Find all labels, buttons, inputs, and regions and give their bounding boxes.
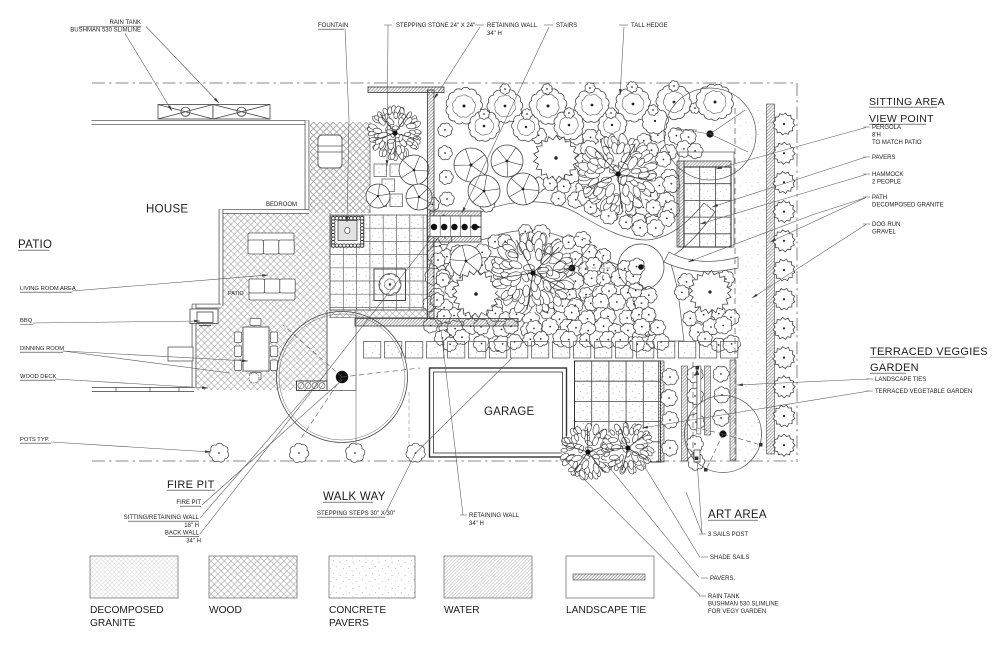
svg-text:RETAINING WALL: RETAINING WALL: [469, 513, 520, 519]
svg-text:SHADE SAILS: SHADE SAILS: [710, 555, 749, 561]
svg-text:TO MATCH PATIO: TO MATCH PATIO: [872, 140, 922, 146]
svg-text:GARAGE: GARAGE: [484, 406, 535, 418]
svg-text:FOR VEGY GARDEN: FOR VEGY GARDEN: [708, 609, 766, 615]
svg-text:WOOD: WOOD: [209, 605, 242, 616]
svg-text:34" H: 34" H: [487, 31, 502, 37]
svg-text:TERRACED VEGETABLE GARDEN: TERRACED VEGETABLE GARDEN: [875, 389, 972, 395]
svg-text:PATIO: PATIO: [18, 239, 52, 251]
svg-text:WATER: WATER: [444, 605, 480, 616]
svg-text:PERGOLA: PERGOLA: [872, 125, 901, 131]
svg-text:GRANITE: GRANITE: [90, 618, 135, 629]
svg-text:BACK WALL: BACK WALL: [165, 531, 200, 537]
svg-text:CONCRETE: CONCRETE: [329, 605, 386, 616]
svg-text:BEDROOM: BEDROOM: [266, 202, 297, 208]
svg-text:TALL HEDGE: TALL HEDGE: [631, 23, 668, 29]
svg-text:HOUSE: HOUSE: [146, 204, 188, 216]
svg-text:FIRE PIT: FIRE PIT: [167, 479, 215, 491]
svg-text:PAVERS: PAVERS: [329, 618, 369, 629]
svg-text:HAMMOCK: HAMMOCK: [872, 172, 903, 178]
svg-text:BBQ: BBQ: [20, 318, 33, 324]
svg-text:VIEW POINT: VIEW POINT: [869, 113, 934, 125]
svg-text:PATIO: PATIO: [228, 291, 244, 297]
svg-text:RAIN TANK: RAIN TANK: [708, 594, 739, 600]
svg-text:ART AREA: ART AREA: [708, 509, 767, 521]
svg-text:BUSHMAN 530 SLIMLINE: BUSHMAN 530 SLIMLINE: [708, 602, 779, 608]
svg-text:PAVERS.: PAVERS.: [710, 576, 735, 582]
svg-text:PAVERS: PAVERS: [872, 155, 895, 161]
svg-text:SITTING AREA: SITTING AREA: [869, 96, 945, 108]
svg-text:SITTING/RETAINING WALL: SITTING/RETAINING WALL: [124, 515, 200, 521]
svg-text:WOOD DECK: WOOD DECK: [20, 374, 57, 380]
svg-text:STAIRS: STAIRS: [556, 23, 577, 29]
svg-text:18" H: 18" H: [184, 523, 199, 529]
svg-text:3 SAILS POST: 3 SAILS POST: [708, 532, 748, 538]
svg-text:STEPPING STONE 24" X 24": STEPPING STONE 24" X 24": [396, 23, 475, 29]
svg-text:DECOMPOSED GRANITE: DECOMPOSED GRANITE: [872, 203, 944, 209]
svg-text:GARDEN: GARDEN: [870, 362, 919, 374]
svg-text:DINNING ROOM: DINNING ROOM: [20, 346, 64, 352]
svg-text:LANDSCAPE TIE: LANDSCAPE TIE: [566, 605, 646, 616]
svg-text:WALK WAY: WALK WAY: [323, 491, 386, 503]
svg-text:DECOMPOSED: DECOMPOSED: [90, 605, 164, 616]
svg-text:LANDSCAPE TIES: LANDSCAPE TIES: [875, 377, 926, 383]
svg-text:LIVING ROOM AREA: LIVING ROOM AREA: [20, 286, 76, 292]
svg-text:TERRACED VEGGIES: TERRACED VEGGIES: [870, 346, 988, 358]
svg-text:DOG RUN: DOG RUN: [872, 222, 900, 228]
svg-text:34" H: 34" H: [469, 521, 484, 527]
svg-text:RETAINING WALL: RETAINING WALL: [487, 23, 538, 29]
svg-text:BUSHMAN 530 SLIMLINE: BUSHMAN 530 SLIMLINE: [70, 28, 141, 34]
svg-text:FOUNTAIN: FOUNTAIN: [318, 23, 348, 29]
svg-text:STEPPING STEPS 30" X 30": STEPPING STEPS 30" X 30": [317, 511, 395, 517]
svg-text:PATH: PATH: [872, 195, 887, 201]
svg-text:2 PEOPLE: 2 PEOPLE: [872, 180, 901, 186]
svg-text:8'H: 8'H: [872, 133, 881, 139]
svg-text:RAIN TANK: RAIN TANK: [110, 20, 141, 26]
svg-text:FIRE PIT: FIRE PIT: [176, 500, 201, 506]
svg-text:GRAVEL: GRAVEL: [872, 230, 897, 236]
svg-text:POTS TYP.: POTS TYP.: [20, 437, 50, 443]
svg-text:34" H: 34" H: [186, 539, 201, 545]
